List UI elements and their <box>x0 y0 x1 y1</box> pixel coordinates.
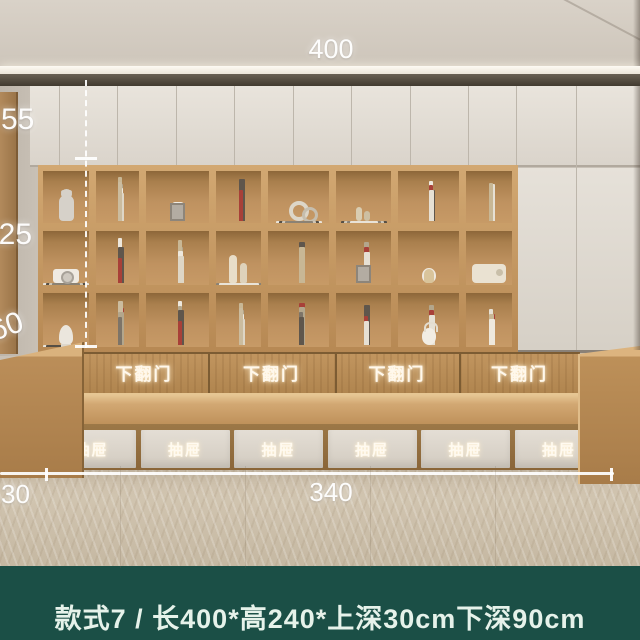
book-spine <box>429 190 434 221</box>
side-depth-label: 30 <box>1 479 30 510</box>
flip-door-label: 下翻门 <box>80 352 208 393</box>
shelf-cell <box>466 231 512 285</box>
flip-door-label: 下翻门 <box>335 352 459 393</box>
book-spine <box>118 317 122 345</box>
book-spine <box>489 319 495 345</box>
shelf-cell <box>43 171 89 223</box>
shelf-cell <box>96 231 139 285</box>
stacked-book <box>350 221 378 223</box>
book-spine <box>178 256 184 283</box>
flip-door-label: 下翻门 <box>459 352 580 393</box>
shelf-cell <box>268 293 329 347</box>
book-spine <box>178 321 182 345</box>
bottles-decor <box>356 207 372 221</box>
width-tick-left <box>45 468 48 481</box>
shelf-cell <box>43 293 89 347</box>
book-spine <box>239 308 243 345</box>
bench-width-label: 340 <box>292 477 370 508</box>
total-width-label: 400 <box>292 34 370 65</box>
middle-height-label: 125 <box>0 218 32 252</box>
book-spine <box>118 258 122 283</box>
book-spine <box>364 321 369 345</box>
drawer-front: 抽屉 <box>421 430 510 468</box>
shelf-cell <box>268 171 329 223</box>
shelf-cell <box>398 231 459 285</box>
width-tick-right <box>610 468 613 481</box>
width-dimension-line <box>0 472 614 475</box>
shelf-cell <box>398 171 459 223</box>
stacked-book <box>285 221 313 223</box>
stacked-book <box>219 283 259 285</box>
height-tick <box>75 345 97 348</box>
cabinet-door-seam <box>293 85 294 166</box>
radio-decor <box>472 264 506 283</box>
cabinet-door-seam <box>117 85 118 166</box>
height-dimension-line <box>85 80 87 348</box>
cabinet-door-seam <box>410 85 411 166</box>
book-spine <box>489 183 493 221</box>
drawer-front: 抽屉 <box>234 430 323 468</box>
camera-decor <box>53 269 79 283</box>
shelf-cell <box>268 231 329 285</box>
frame-decor <box>356 265 371 283</box>
caption-text: 款式7 / 长400*高240*上深30cm下深90cm <box>55 597 586 636</box>
carpet-seam <box>370 466 371 568</box>
shelf-cell <box>146 293 209 347</box>
shelf-cell <box>96 171 139 223</box>
caption-band: 款式7 / 长400*高240*上深30cm下深90cm <box>0 566 640 640</box>
shelf-cell <box>216 171 261 223</box>
cabinet-door-seam <box>351 85 352 166</box>
drawer-front: 抽屉 <box>141 430 230 468</box>
flip-door-label: 下翻门 <box>208 352 335 393</box>
shelf-cell <box>336 293 391 347</box>
book-spine <box>118 182 122 221</box>
upper-height-label: 55 <box>1 103 34 137</box>
upper-cabinet-row <box>30 85 640 167</box>
carpet-seam <box>245 466 246 568</box>
cabinet-door-seam <box>234 85 235 166</box>
bench-left-arm <box>0 342 84 478</box>
cabinet-top-shadow <box>0 74 640 86</box>
drawer-front: 抽屉 <box>328 430 417 468</box>
shelf-cell <box>216 293 261 347</box>
book-spine <box>299 247 305 283</box>
book-spine <box>299 317 304 345</box>
cat-decor <box>424 269 434 283</box>
shelf-cell <box>336 231 391 285</box>
shelf-cell <box>466 293 512 347</box>
bear-decor <box>59 195 74 221</box>
shelf-cell <box>43 231 89 285</box>
shelf-cell <box>398 293 459 347</box>
cabinet-door-seam <box>576 85 577 350</box>
led-light-strip <box>0 66 640 74</box>
bench-right-arm <box>578 344 640 484</box>
right-wall-shadow <box>633 0 640 350</box>
bust-decor <box>59 325 73 345</box>
shelf-cell <box>146 231 209 285</box>
carpet-seam <box>120 466 121 568</box>
shelf-cell <box>216 231 261 285</box>
shelf-cell <box>336 171 391 223</box>
rings-decor <box>289 201 309 221</box>
cabinet-door-seam <box>176 85 177 166</box>
shelf-cell <box>466 171 512 223</box>
height-tick <box>75 157 97 160</box>
bench-seat <box>40 392 640 426</box>
product-photo-scene: 下翻门下翻门下翻门下翻门 抽屉抽屉抽屉抽屉抽屉抽屉 400 55 125 60 … <box>0 0 640 640</box>
book-spine <box>239 190 243 221</box>
cabinet-door-seam <box>59 85 60 166</box>
lantern-decor <box>422 328 436 345</box>
vases-decor <box>229 255 249 283</box>
carpet-seam <box>495 466 496 568</box>
shelf-cell <box>96 293 139 347</box>
frame-decor <box>170 203 185 221</box>
right-tall-cabinet <box>516 167 640 353</box>
shelf-cell <box>146 171 209 223</box>
cabinet-door-seam <box>468 85 469 166</box>
